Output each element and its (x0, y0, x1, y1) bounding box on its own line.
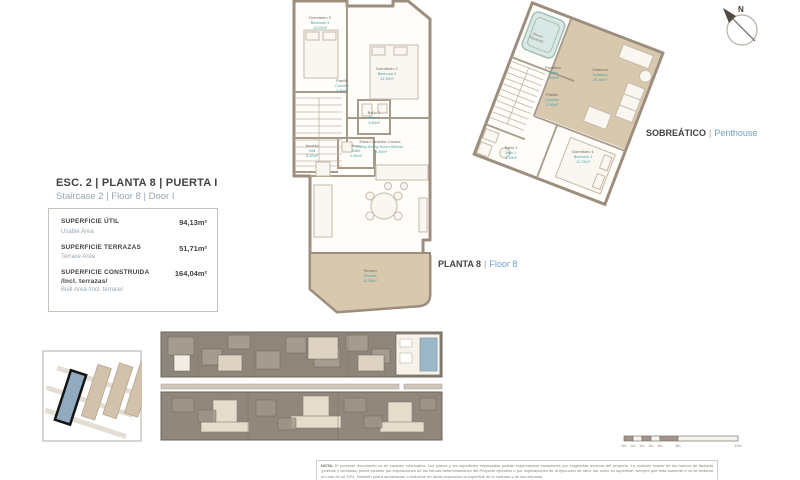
disclaimer-note: NOTA: El presente documento es de caráct… (316, 460, 718, 480)
location-keyplan (42, 350, 142, 442)
room-label-en: Bath 2 (369, 116, 380, 120)
area-row-util: SUPERFICIE ÚTIL 94,13m² Usable Area (61, 218, 207, 235)
room-label-area: 2,85m² (350, 154, 363, 158)
sobreatico-es: SOBREÁTICO (646, 128, 706, 138)
room-label-es: Estar-Comedor-Cocina (360, 139, 402, 144)
area-table: SUPERFICIE ÚTIL 94,13m² Usable Area SUPE… (48, 208, 218, 312)
sobreatico-en: Penthouse (714, 128, 757, 138)
area-value: 164,04m² (175, 269, 207, 278)
dining-table (371, 193, 397, 219)
room-label-es: Dormitorio 2 (376, 66, 399, 71)
room-label-area: 39,35m² (593, 78, 608, 82)
disclaimer-text: El presente documento es de carácter inf… (321, 463, 713, 479)
room-label-en: Corridor (335, 84, 349, 88)
scale-tick: 10m (735, 444, 742, 448)
room-label-en: Stairs (548, 71, 558, 75)
area-value: 51,71m² (179, 244, 207, 253)
room-label-en: Living-Dining Room-Kitchen (356, 145, 403, 149)
planta8-en: Floor 8 (489, 259, 517, 269)
room-label-area: 13,39m² (380, 77, 395, 81)
room-label-es: Dormitorio 3 (309, 15, 332, 20)
area-label-es-2: /Incl. terrazas/ (61, 278, 207, 285)
room-label-area: 12,36m² (363, 279, 378, 283)
room-label-es: Pasillo (546, 92, 559, 97)
scale-tick: 2m (640, 444, 645, 448)
room-label-en: Hall (309, 149, 316, 153)
area-label-en: Built Area /Incl. terrace/ (61, 287, 207, 293)
compass-icon: N (705, 0, 775, 52)
strip-floor-keyplan-2 (158, 382, 446, 444)
strip-floor-keyplan-1 (158, 329, 446, 381)
room-label-es: Pasillo (336, 78, 349, 83)
area-label-en: Usable Area (61, 229, 207, 235)
room-label-es: Acceso (305, 143, 319, 148)
compass-n-label: N (738, 5, 744, 14)
room-label-es: Dormitorio 1 (572, 149, 595, 154)
scale-tick: 0m (622, 444, 627, 448)
scale-tick: 4m (658, 444, 663, 448)
area-label-es: SUPERFICIE TERRAZAS (61, 244, 141, 251)
area-label-es: SUPERFICIE CONSTRUIDA (61, 269, 149, 276)
room-label-es: Terraza (363, 268, 377, 273)
area-row-terrazas: SUPERFICIE TERRAZAS 51,71m² Terrace Area (61, 244, 207, 261)
room-label-area: 3,80m² (368, 121, 381, 125)
room-label-es: Solárium (592, 67, 608, 72)
room-label-en: Toilet (352, 149, 362, 153)
room-label-area: 5,20m² (306, 154, 319, 158)
room-label-area: 11,72m² (576, 160, 590, 164)
kitchen-island (376, 165, 428, 180)
pool-shape (420, 338, 437, 371)
label-sobreatico: SOBREÁTICO|Penthouse (646, 128, 757, 138)
plan-sheet: N ESC. 2 | PLANTA 8 | PUERTA I Staircase… (0, 0, 800, 480)
disclaimer-label: NOTA: (321, 463, 333, 468)
planta8-es: PLANTA 8 (438, 259, 481, 269)
room-label-es: Baño 2 (368, 110, 381, 115)
area-row-construida: SUPERFICIE CONSTRUIDA 164,04m² /Incl. te… (61, 269, 207, 293)
scale-bar: 0m 1m 2m 3m 4m 5m 10m (620, 430, 750, 452)
room-label-en: Solarium (593, 73, 608, 77)
penthouse-plan: Jacuzzi (Opcional) Solárium Solarium 39,… (468, 0, 668, 212)
scale-tick: 1m (631, 444, 636, 448)
unit-header: ESC. 2 | PLANTA 8 | PUERTA I Staircase 2… (56, 177, 218, 202)
area-label-es: SUPERFICIE ÚTIL (61, 218, 119, 225)
room-label-area: 3,40m² (336, 89, 349, 93)
room-label-es: Escalera (545, 65, 561, 70)
room-label-area: 12,02m² (313, 26, 328, 30)
sofa (314, 185, 332, 237)
label-planta8: PLANTA 8|Floor 8 (438, 259, 517, 269)
area-label-en: Terrace Area (61, 254, 207, 260)
room-label-area: 28,46m² (373, 150, 388, 154)
unit-subtitle: Staircase 2 | Floor 8 | Door I (56, 191, 218, 202)
room-label-en: Terrace (364, 274, 377, 278)
room-label-en: Bedroom 1 (574, 155, 593, 159)
room-label-area: 4,19m² (505, 156, 518, 160)
room-label-en: Bedroom 2 (378, 72, 397, 76)
room-label-en: Corridor (545, 98, 559, 102)
room-label-area: 7,04m² (547, 76, 560, 80)
scale-tick: 5m (676, 444, 681, 448)
room-label-es: Baño 1 (505, 145, 518, 150)
unit-title: ESC. 2 | PLANTA 8 | PUERTA I (56, 177, 218, 189)
room-label-en: Bedroom 3 (311, 21, 330, 25)
scale-tick: 3m (649, 444, 654, 448)
area-value: 94,13m² (179, 218, 207, 227)
room-label-en: Bath 1 (506, 151, 517, 155)
floor8-plan: Dormitorio 3 Bedroom 3 12,02m² Dormitori… (280, 0, 450, 322)
room-label-area: 2,06m² (546, 103, 559, 107)
